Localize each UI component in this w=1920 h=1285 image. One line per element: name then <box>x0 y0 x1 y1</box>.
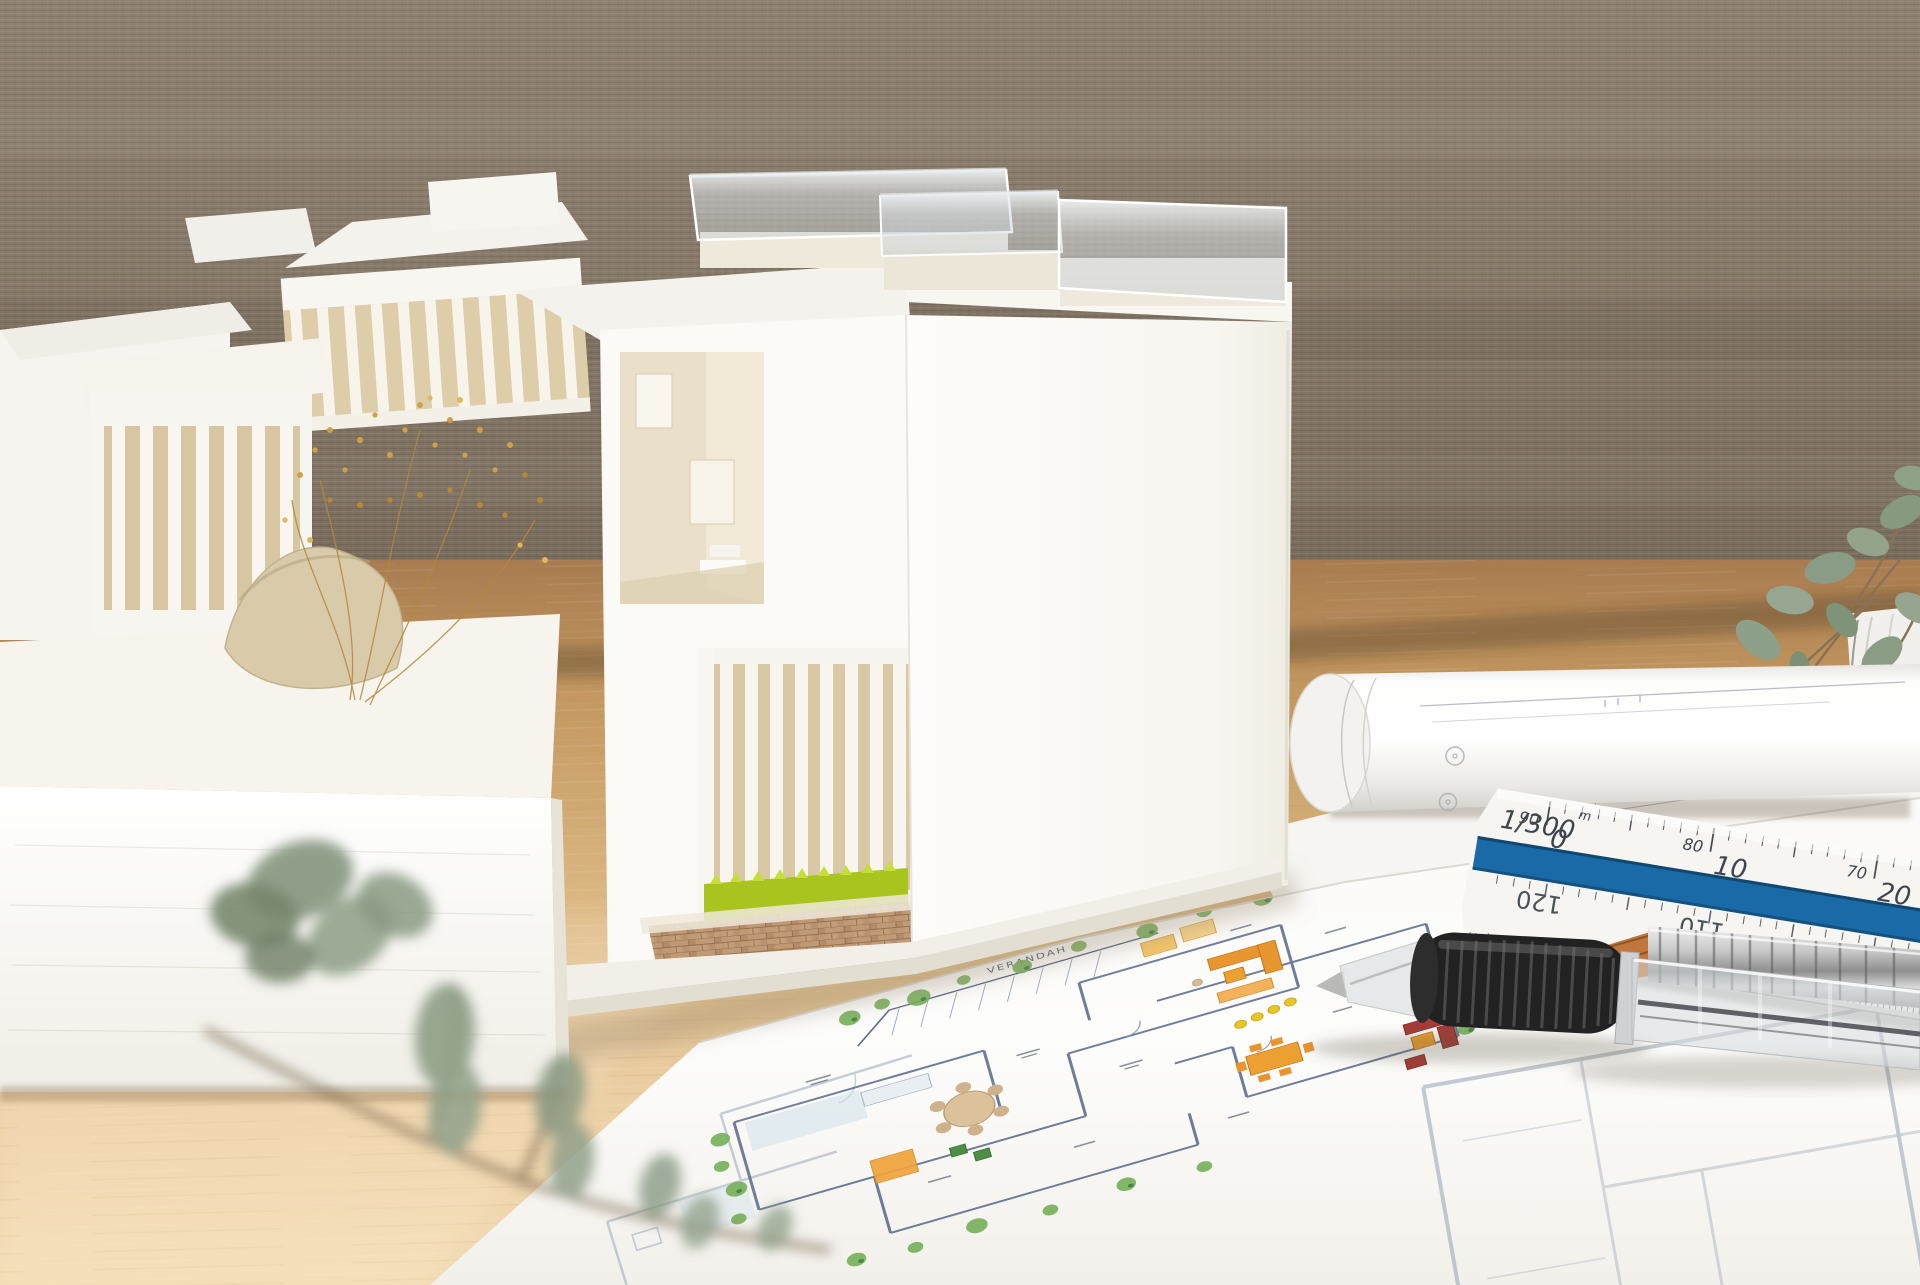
blueprint-roll <box>1290 664 1920 818</box>
svg-text:90: 90 <box>1518 808 1541 830</box>
svg-text:80: 80 <box>1681 834 1704 856</box>
pen-shadow <box>1310 1033 1650 1063</box>
scene-canvas: VERANDAH <box>0 0 1920 1285</box>
model-window-opening <box>690 460 734 524</box>
model-stair <box>710 545 740 557</box>
acrylic-slab <box>1059 200 1286 302</box>
svg-text:70: 70 <box>1845 861 1868 883</box>
model-window-opening <box>636 374 672 428</box>
pencil-rubber-grip <box>1408 930 1633 1035</box>
wall-band <box>0 110 1920 156</box>
model-roof-slab <box>428 172 560 232</box>
photo-architectural-model-scene: VERANDAH <box>0 0 1920 1285</box>
acrylic-slab <box>880 192 1062 256</box>
roll-end <box>1290 674 1370 812</box>
model-right-box <box>906 268 1292 958</box>
model-back-slat-screen <box>281 258 591 433</box>
